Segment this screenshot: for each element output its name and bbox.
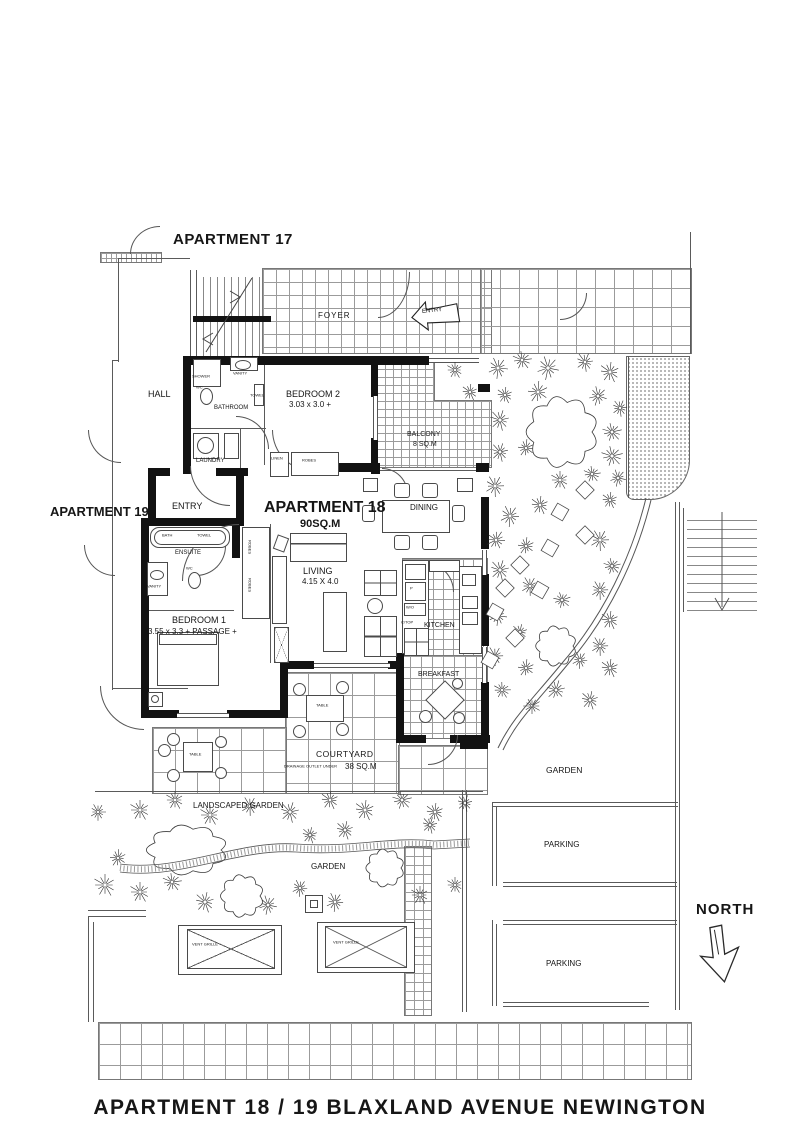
- furniture: [167, 769, 180, 782]
- path-line: [498, 498, 646, 748]
- bath-wc-label: WC: [196, 385, 203, 390]
- planting-bed: [626, 356, 690, 500]
- line: [148, 610, 234, 611]
- ensuite-vanity-label: VANITY: [147, 584, 161, 589]
- wall: [227, 710, 287, 718]
- shrub-icon: [487, 532, 505, 548]
- tree-icon: [146, 825, 225, 875]
- furniture: [323, 592, 347, 652]
- parking-upper-label: PARKING: [544, 840, 579, 849]
- shrub-icon: [603, 423, 622, 440]
- line: [679, 502, 680, 1010]
- wall: [141, 710, 179, 718]
- shrub-icon: [553, 592, 570, 607]
- entry-arrow-icon: [407, 291, 466, 342]
- bath-vanity-label: VANITY: [233, 371, 247, 376]
- tiled-floor: [98, 1022, 692, 1080]
- furniture: [336, 723, 349, 736]
- shrub-icon: [490, 607, 507, 626]
- shrub-icon: [547, 681, 564, 698]
- line: [628, 356, 629, 498]
- furniture: [325, 926, 407, 968]
- furniture: [405, 564, 426, 580]
- line: [492, 802, 493, 886]
- wall: [286, 661, 314, 669]
- stepping-stone: [531, 581, 549, 599]
- robes-col2-label: ROBES: [248, 578, 253, 592]
- shrub-icon: [603, 492, 617, 508]
- furniture: [394, 483, 410, 498]
- shrub-icon: [582, 691, 598, 709]
- wall: [481, 497, 489, 549]
- furniture: [422, 535, 438, 550]
- line: [112, 360, 119, 361]
- tiled-floor: [480, 268, 692, 354]
- window: [429, 358, 479, 363]
- apartment-19-label: APARTMENT 19: [50, 504, 149, 519]
- shrub-icon: [523, 699, 539, 714]
- window: [373, 396, 378, 440]
- table2-label: TABLE: [316, 703, 328, 708]
- furniture: [452, 505, 465, 522]
- shrub-icon: [327, 893, 343, 912]
- balcony-area: 8 SQ.M: [413, 441, 437, 448]
- wall: [236, 468, 244, 526]
- shrub-icon: [573, 652, 587, 669]
- furniture: [462, 596, 478, 609]
- bedroom1-dims: 3.55 x 3.3 + PASSAGE +: [148, 627, 237, 636]
- line: [496, 924, 497, 1006]
- stepping-stone: [511, 556, 529, 574]
- shrub-icon: [492, 443, 508, 461]
- shrub-icon: [604, 558, 621, 573]
- balcony-label: BALCONY: [407, 431, 440, 438]
- shrub-icon: [528, 381, 547, 401]
- window: [314, 663, 390, 668]
- plan-title: APARTMENT 18 / 19 BLAXLAND AVENUE NEWING…: [70, 1096, 730, 1120]
- hall-label: HALL: [148, 389, 171, 399]
- line: [88, 916, 89, 1022]
- robes-col1-label: ROBES: [248, 540, 253, 554]
- shrub-icon: [584, 466, 601, 481]
- garden-right-label: GARDEN: [546, 765, 582, 775]
- stepping-stone: [506, 629, 524, 647]
- parking-lower-label: PARKING: [546, 959, 581, 968]
- furniture: [215, 767, 227, 779]
- shrub-icon: [518, 537, 533, 553]
- line: [683, 508, 684, 612]
- stepping-stone: [496, 579, 514, 597]
- robes-top-label: ROBES: [302, 458, 316, 463]
- line: [503, 1002, 649, 1003]
- line: [492, 920, 493, 1006]
- stairs-upper-lower-flight: [197, 322, 233, 356]
- vent-grille1-label: VENT GRILLE: [192, 942, 218, 947]
- wall: [148, 468, 156, 526]
- shrub-icon: [551, 471, 567, 489]
- stepping-stone: [576, 526, 594, 544]
- tree-icon: [536, 626, 576, 666]
- apartment-17-label: APARTMENT 17: [173, 231, 293, 248]
- furniture: [310, 900, 318, 908]
- door-arc: [190, 466, 230, 506]
- wall: [478, 384, 490, 392]
- furniture: [453, 712, 465, 724]
- shrub-icon: [610, 470, 625, 487]
- bedroom2-label: BEDROOM 2: [286, 389, 340, 399]
- bedroom1-label: BEDROOM 1: [172, 615, 226, 625]
- shrub-icon: [487, 477, 505, 497]
- breakfast-label: BREAKFAST: [418, 671, 459, 678]
- garden-left-label: GARDEN: [311, 862, 345, 871]
- shrub-icon: [491, 410, 508, 430]
- shrub-icon: [518, 659, 533, 675]
- furniture: [364, 570, 397, 596]
- wall: [460, 737, 488, 749]
- entry19-label: ENTRY: [172, 501, 202, 511]
- wall: [183, 356, 191, 474]
- wall: [398, 735, 426, 743]
- furniture: [293, 683, 306, 696]
- cooktop-label: C/TOP: [401, 620, 413, 625]
- shrub-icon: [601, 362, 618, 382]
- furniture: [306, 695, 344, 722]
- wall: [193, 316, 271, 322]
- line: [270, 524, 271, 663]
- shrub-icon: [602, 446, 623, 465]
- door-arc: [84, 545, 115, 576]
- furniture: [405, 582, 426, 601]
- furniture: [215, 736, 227, 748]
- ensuite-towel-label: TOWEL: [197, 533, 211, 538]
- shrub-icon: [578, 354, 594, 372]
- ensuite-wc-label: WC: [186, 566, 193, 571]
- furniture: [336, 681, 349, 694]
- shrub-icon: [356, 800, 373, 820]
- line: [492, 806, 678, 807]
- furniture: [193, 359, 221, 387]
- wall: [388, 661, 402, 669]
- shrub-icon: [196, 892, 213, 912]
- shrub-icon: [303, 827, 317, 843]
- foyer-label: FOYER: [318, 311, 351, 320]
- line: [503, 882, 677, 883]
- line: [264, 365, 265, 465]
- shrub-icon: [423, 817, 437, 833]
- shrub-icon: [494, 682, 511, 698]
- line: [118, 258, 119, 362]
- bedroom2-dims: 3.03 x 3.0 +: [289, 400, 331, 409]
- linen-label: LINEN: [271, 456, 283, 461]
- line: [503, 920, 677, 921]
- furniture: [273, 534, 289, 552]
- stepping-stone: [551, 503, 569, 521]
- window: [482, 550, 487, 575]
- wall: [371, 365, 378, 397]
- line: [88, 916, 146, 917]
- wall: [371, 463, 380, 474]
- line: [88, 910, 146, 911]
- shrub-icon: [281, 802, 298, 822]
- furniture: [462, 574, 476, 586]
- line: [690, 232, 691, 354]
- line: [503, 1006, 649, 1007]
- door-arc: [100, 686, 144, 730]
- shrub-icon: [260, 896, 277, 915]
- furniture: [419, 710, 432, 723]
- furniture: [422, 483, 438, 498]
- furniture: [291, 452, 339, 476]
- shrub-icon: [592, 582, 608, 600]
- furniture: [404, 628, 429, 656]
- furniture: [364, 616, 397, 657]
- line: [196, 270, 197, 356]
- line: [466, 790, 467, 1012]
- living-label: LIVING: [303, 566, 333, 576]
- living-dims: 4.15 X 4.0: [302, 577, 338, 586]
- shrub-icon: [131, 800, 148, 820]
- shrub-icon: [602, 611, 618, 629]
- shrub-icon: [589, 386, 606, 405]
- shrub-icon: [447, 877, 461, 893]
- line: [675, 502, 676, 1010]
- window: [482, 647, 487, 683]
- tree-icon: [366, 849, 403, 887]
- shrub-icon: [538, 357, 559, 380]
- stairs-right: [687, 512, 757, 612]
- line: [492, 802, 678, 803]
- tree-icon: [526, 397, 596, 468]
- furniture: [452, 678, 463, 689]
- laundry-label: LAUNDRY: [196, 458, 225, 464]
- furniture: [457, 478, 473, 492]
- bathroom-label: BATHROOM: [214, 405, 248, 411]
- window: [177, 713, 229, 718]
- shrub-icon: [131, 882, 148, 902]
- line: [496, 806, 497, 886]
- shrub-icon: [163, 873, 182, 890]
- courtyard-note: DRAINAGE OUTLET UNDER: [284, 764, 337, 769]
- shrub-icon: [513, 624, 527, 640]
- furniture: [167, 733, 180, 746]
- furniture: [290, 533, 347, 562]
- furniture: [188, 572, 201, 589]
- furniture: [150, 570, 164, 580]
- shrub-icon: [501, 506, 519, 527]
- shrub-icon: [602, 659, 618, 677]
- furniture: [183, 742, 213, 772]
- landscaped-garden-label: LANDSCAPED GARDEN: [193, 801, 284, 810]
- table1-label: TABLE: [189, 752, 201, 757]
- shrub-icon: [110, 849, 125, 865]
- dining-label: DINING: [410, 503, 438, 512]
- vent-grille2-label: VENT GRILLE: [333, 940, 359, 945]
- kitchen-label: KITCHEN: [424, 622, 455, 629]
- furniture: [394, 535, 410, 550]
- furniture: [187, 929, 275, 969]
- line: [95, 791, 483, 792]
- shrub-icon: [487, 648, 503, 666]
- shrub-icon: [498, 387, 512, 403]
- door-arc: [88, 430, 121, 463]
- stepping-stone: [541, 539, 559, 557]
- courtyard-area: 38 SQ.M: [345, 762, 377, 771]
- shrub-icon: [91, 804, 106, 820]
- ensuite-bath-label: BATH: [162, 533, 172, 538]
- north-label: NORTH: [696, 901, 754, 918]
- courtyard-label: COURTYARD: [316, 749, 374, 759]
- apartment-18-label: APARTMENT 18: [264, 499, 386, 517]
- shrub-icon: [522, 578, 538, 596]
- bath-towel-label: TOWEL: [250, 393, 264, 398]
- line: [112, 360, 113, 690]
- furniture: [197, 437, 214, 454]
- door-arc: [130, 226, 160, 254]
- pantry-label: P: [410, 586, 413, 591]
- furniture: [224, 433, 239, 459]
- shower-label: SHOWER: [192, 374, 210, 379]
- wall: [476, 463, 489, 472]
- furniture: [429, 560, 460, 572]
- wall: [481, 682, 489, 742]
- wall-oven-label: W/O: [406, 605, 414, 610]
- furniture: [274, 627, 289, 663]
- shrub-icon: [491, 560, 508, 580]
- line: [503, 886, 677, 887]
- shrub-icon: [592, 531, 610, 551]
- line: [503, 924, 677, 925]
- wall: [481, 574, 489, 646]
- shrub-icon: [592, 638, 608, 656]
- line: [462, 790, 463, 1012]
- stepping-stone: [576, 481, 594, 499]
- furniture: [363, 478, 378, 492]
- balcony-notch: [434, 360, 492, 401]
- line: [190, 270, 191, 356]
- path-line: [503, 500, 651, 750]
- furniture: [235, 360, 251, 370]
- furniture: [158, 744, 171, 757]
- shrub-icon: [532, 496, 548, 514]
- shrub-icon: [337, 821, 353, 839]
- furniture: [242, 527, 270, 619]
- furniture: [272, 556, 287, 624]
- line: [118, 258, 190, 259]
- apartment-18-area: 90SQ.M: [300, 518, 340, 530]
- floor-plan: APARTMENT 17 FOYER HALL BEDROOM 2 3.03 x…: [0, 0, 800, 1141]
- furniture: [293, 725, 306, 738]
- furniture: [367, 598, 383, 614]
- line: [93, 922, 94, 1022]
- furniture: [462, 612, 478, 625]
- shrub-icon: [518, 439, 533, 455]
- ensuite-label: ENSUITE: [175, 550, 201, 556]
- furniture: [151, 695, 159, 703]
- tree-icon: [221, 875, 263, 917]
- north-arrow-icon: [686, 919, 756, 994]
- shrub-icon: [95, 874, 114, 896]
- shrub-icon: [427, 803, 443, 821]
- furniture: [200, 388, 213, 405]
